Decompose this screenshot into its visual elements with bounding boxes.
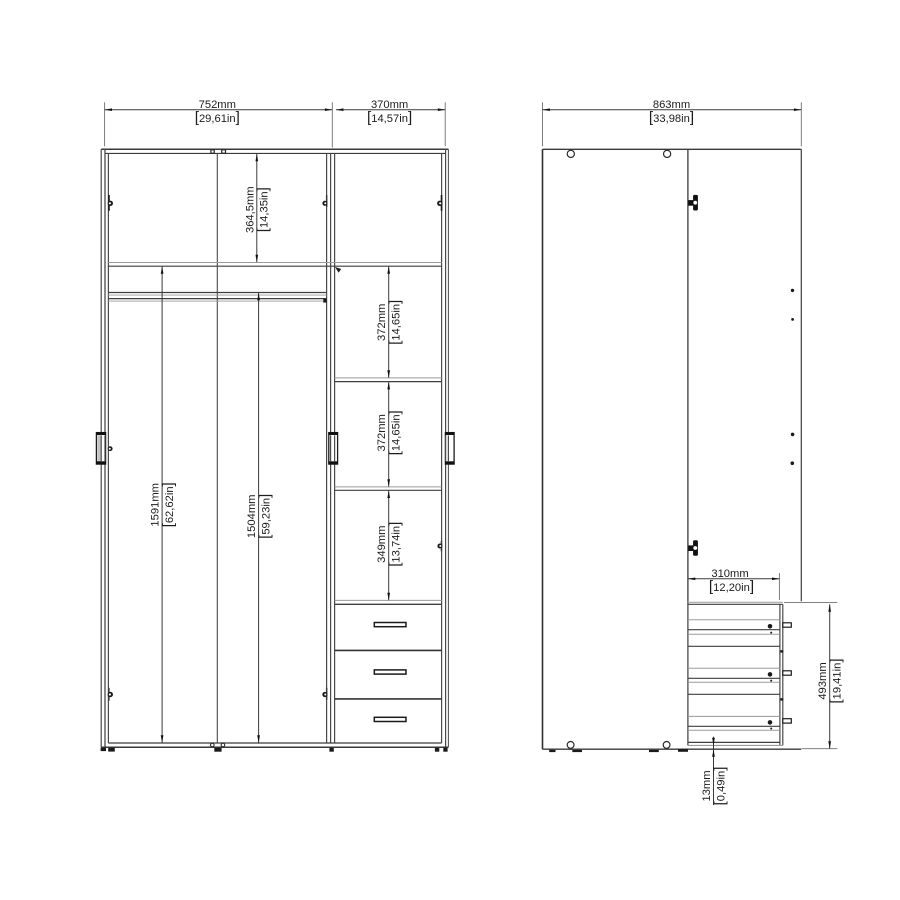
svg-text:1591mm: 1591mm (150, 483, 162, 527)
svg-text:493mm: 493mm (817, 662, 829, 699)
svg-text:372mm: 372mm (376, 304, 388, 341)
svg-text:372mm: 372mm (376, 414, 388, 451)
svg-text:752mm: 752mm (199, 99, 236, 111)
svg-text:370mm: 370mm (371, 99, 408, 111)
svg-text:13mm: 13mm (701, 770, 713, 801)
svg-text:1504mm: 1504mm (246, 495, 258, 539)
svg-text:310mm: 310mm (711, 568, 748, 580)
svg-text:364,5mm: 364,5mm (244, 186, 256, 233)
svg-text:349mm: 349mm (376, 526, 388, 563)
svg-text:863mm: 863mm (653, 99, 690, 111)
